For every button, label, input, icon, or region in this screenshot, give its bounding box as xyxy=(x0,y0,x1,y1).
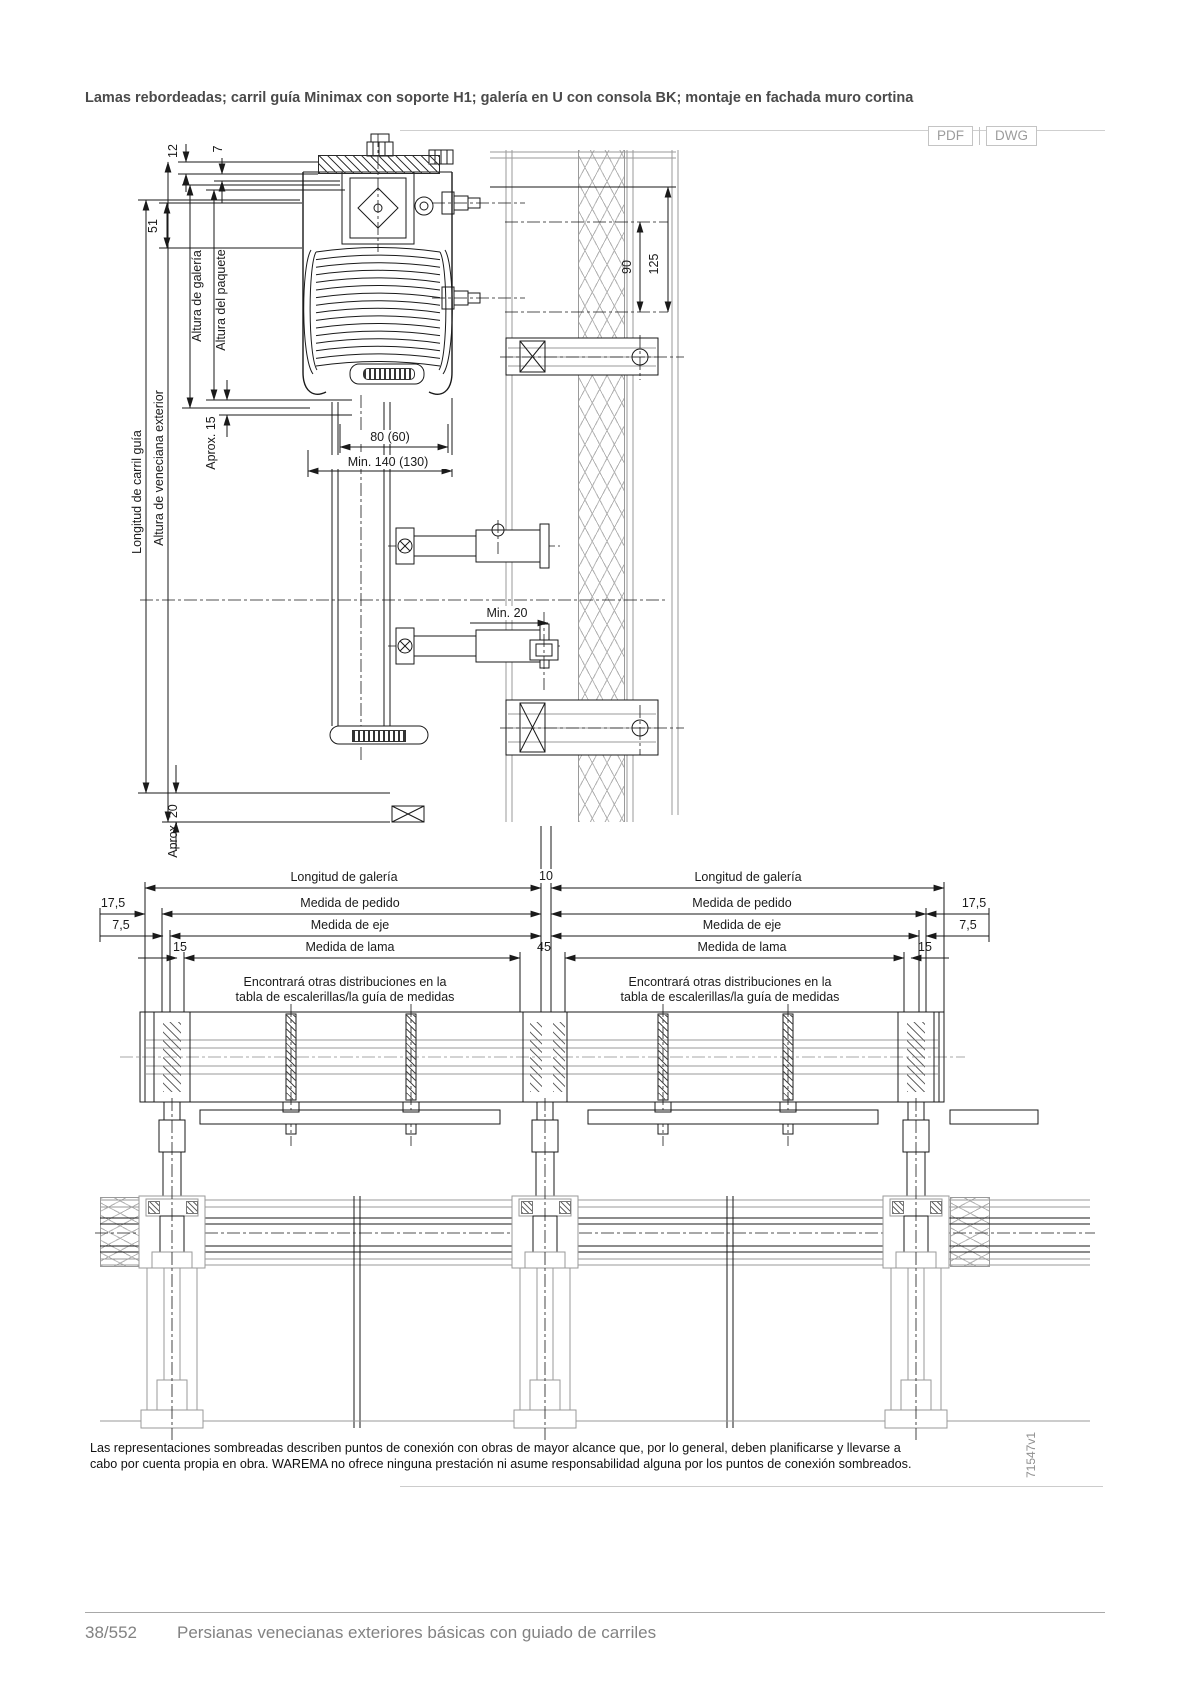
catalog-page: Lamas rebordeadas; carril guía Minimax c… xyxy=(0,0,1190,1684)
dim-label-7-5-left: 7,5 xyxy=(112,918,129,932)
dim-label-min-140: Min. 140 (130) xyxy=(348,455,429,469)
dim-label-90: 90 xyxy=(620,260,634,274)
slat-package xyxy=(304,248,453,385)
dim-label-aprox-15: Aprox. 15 xyxy=(204,416,218,470)
dim-label-altura-paquete: Altura del paquete xyxy=(214,249,228,351)
ladder-tape-hatch xyxy=(406,1015,416,1100)
dim-label-17-5-left: 17,5 xyxy=(101,896,125,910)
dim-label-medida-pedido-right: Medida de pedido xyxy=(692,896,791,910)
technical-drawing: 12 7 51 Altura de galería Altura del paq… xyxy=(0,0,1190,1684)
dim-label-17-5-right: 17,5 xyxy=(962,896,986,910)
dim-label-medida-eje-left: Medida de eje xyxy=(311,918,390,932)
plan-annotation-right-line1: Encontrará otras distribuciones en la xyxy=(629,975,832,989)
plan-dimensions xyxy=(100,826,989,1012)
ladder-tape-hatch xyxy=(658,1015,668,1100)
dim-label-7: 7 xyxy=(211,145,225,152)
dim-label-altura-veneciana: Altura de veneciana exterior xyxy=(152,390,166,546)
plan-annotation-left-line1: Encontrará otras distribuciones en la xyxy=(244,975,447,989)
dim-label-125: 125 xyxy=(647,254,661,275)
guide-hatch xyxy=(553,1022,565,1092)
dim-label-15-right: 15 xyxy=(918,940,932,954)
transom-detail-lower xyxy=(500,700,684,755)
plan-annotation-right-line2: tabla de escalerillas/la guía de medidas xyxy=(621,990,840,1004)
dim-label-12: 12 xyxy=(166,144,180,158)
dim-label-longitud-carril: Longitud de carril guía xyxy=(130,430,144,554)
head-plate-hatch xyxy=(318,155,440,174)
dim-label-medida-lama-right: Medida de lama xyxy=(698,940,787,954)
bracket-arm-upper xyxy=(388,520,560,568)
ladder-tape-hatch xyxy=(286,1015,296,1100)
dim-label-longitud-galeria-left: Longitud de galería xyxy=(290,870,397,884)
dim-label-80-60: 80 (60) xyxy=(370,430,410,444)
rail-cap-fill xyxy=(352,730,406,742)
guide-hatch xyxy=(907,1022,925,1092)
dim-label-longitud-galeria-right: Longitud de galería xyxy=(694,870,801,884)
pdf-button[interactable]: PDF xyxy=(928,126,973,146)
dim-label-aprox-20: Aprox. 20 xyxy=(166,804,180,858)
dim-label-min-20: Min. 20 xyxy=(487,606,528,620)
cap-hatch xyxy=(892,1201,904,1214)
plan-annotation-left-line2: tabla de escalerillas/la guía de medidas xyxy=(236,990,455,1004)
dim-label-10: 10 xyxy=(539,869,553,883)
transom-detail-upper xyxy=(500,335,684,380)
download-buttons: PDF DWG xyxy=(928,126,1037,146)
cap-hatch xyxy=(930,1201,942,1214)
plan-mullion-bottoms xyxy=(100,1098,1090,1440)
cap-hatch xyxy=(186,1201,198,1214)
ladder-tape-hatch xyxy=(783,1015,793,1100)
cap-hatch xyxy=(148,1201,160,1214)
cap-hatch xyxy=(521,1201,533,1214)
bracket-arm-lower xyxy=(388,612,560,690)
dim-label-45: 45 xyxy=(537,940,551,954)
bottom-rail-fill xyxy=(363,368,415,380)
cap-hatch xyxy=(559,1201,571,1214)
guide-hatch xyxy=(163,1022,181,1092)
dim-label-medida-pedido-left: Medida de pedido xyxy=(300,896,399,910)
dim-label-altura-galeria: Altura de galería xyxy=(190,250,204,342)
dim-label-15-left: 15 xyxy=(173,940,187,954)
dim-label-51: 51 xyxy=(146,219,160,233)
dim-label-medida-lama-left: Medida de lama xyxy=(306,940,395,954)
dwg-button[interactable]: DWG xyxy=(986,126,1037,146)
button-separator xyxy=(979,127,980,145)
guide-hatch xyxy=(530,1022,542,1092)
dim-label-7-5-right: 7,5 xyxy=(959,918,976,932)
dim-label-medida-eje-right: Medida de eje xyxy=(703,918,782,932)
